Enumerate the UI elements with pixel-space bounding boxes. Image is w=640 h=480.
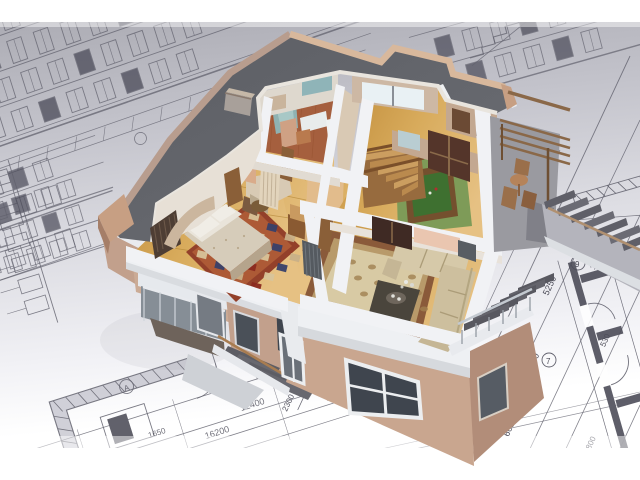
svg-text:7: 7 [546, 357, 551, 366]
